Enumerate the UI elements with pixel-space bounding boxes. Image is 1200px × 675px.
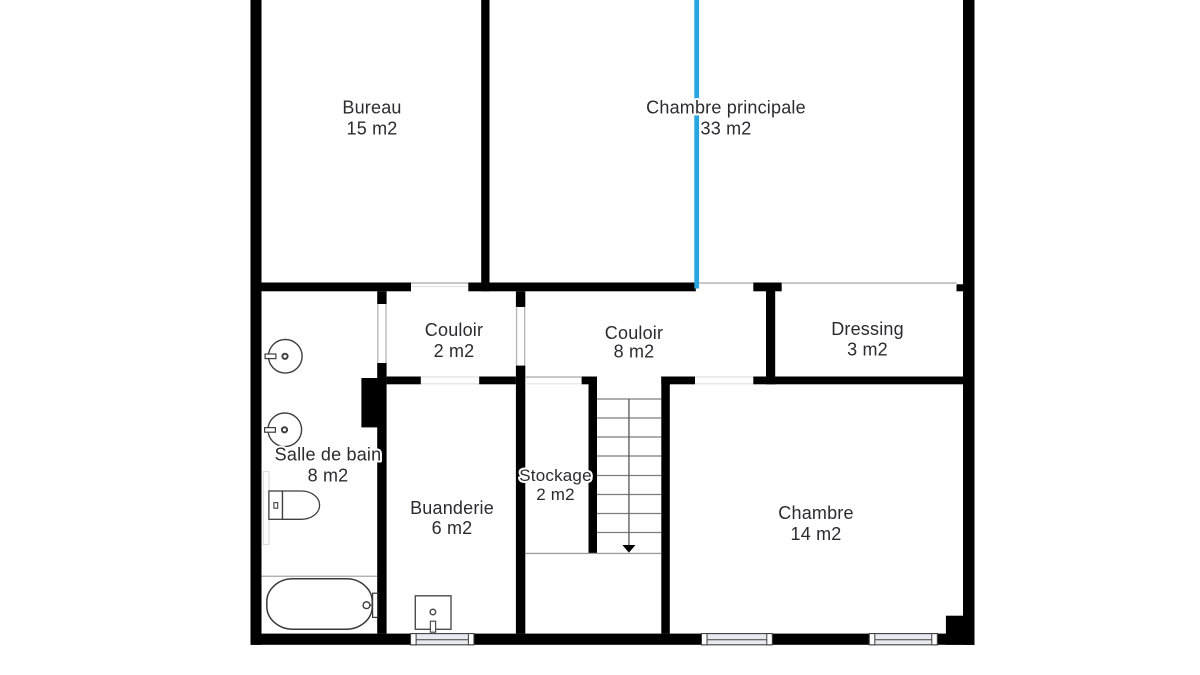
svg-text:33 m2: 33 m2 [700, 119, 751, 139]
svg-text:Couloir: Couloir [605, 323, 663, 343]
svg-text:Chambre principale: Chambre principale [646, 98, 806, 118]
svg-text:Bureau: Bureau [342, 98, 401, 118]
svg-text:Stockage: Stockage [519, 466, 591, 485]
svg-text:3 m2: 3 m2 [847, 340, 888, 360]
svg-text:8 m2: 8 m2 [308, 466, 349, 486]
svg-text:15 m2: 15 m2 [346, 119, 397, 139]
svg-text:2 m2: 2 m2 [536, 485, 575, 504]
svg-text:Buanderie: Buanderie [410, 498, 494, 518]
svg-text:Chambre: Chambre [778, 503, 853, 523]
svg-text:8 m2: 8 m2 [614, 342, 655, 362]
svg-text:2 m2: 2 m2 [434, 341, 475, 361]
svg-text:Salle de bain: Salle de bain [275, 445, 382, 465]
svg-text:6 m2: 6 m2 [432, 518, 473, 538]
svg-text:Couloir: Couloir [425, 320, 483, 340]
svg-text:Dressing: Dressing [831, 319, 904, 339]
svg-text:14 m2: 14 m2 [790, 524, 841, 544]
